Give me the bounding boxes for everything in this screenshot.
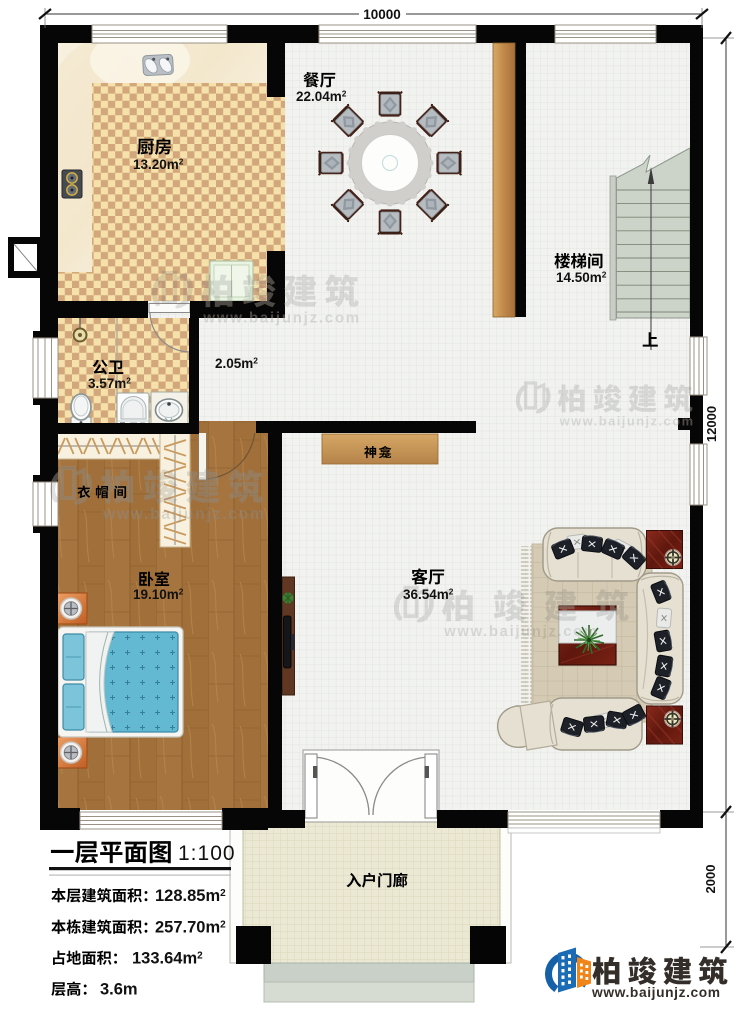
svg-text:1:100: 1:100 <box>178 842 236 865</box>
svg-text:3.57m2: 3.57m2 <box>88 376 131 391</box>
svg-text:www.baijunjz.com: www.baijunjz.com <box>591 985 721 1000</box>
svg-text:14.50m2: 14.50m2 <box>556 270 607 285</box>
svg-text:www.baijunjz.com: www.baijunjz.com <box>102 506 266 523</box>
svg-text:13.20m2: 13.20m2 <box>133 157 184 172</box>
svg-text:10000: 10000 <box>363 7 401 22</box>
svg-text:12000: 12000 <box>704 406 719 442</box>
svg-text:www.baijunjz.com: www.baijunjz.com <box>443 624 598 640</box>
svg-text:19.10m2: 19.10m2 <box>133 587 184 602</box>
svg-text:www.baijunjz.com: www.baijunjz.com <box>202 309 361 326</box>
svg-text:133.64m2: 133.64m2 <box>132 950 203 968</box>
svg-text:2000: 2000 <box>703 865 718 894</box>
svg-text:www.baijunjz.com: www.baijunjz.com <box>559 413 695 428</box>
svg-text:2.05m2: 2.05m2 <box>215 356 258 371</box>
svg-text:128.85m2: 128.85m2 <box>155 887 226 905</box>
svg-text:22.04m2: 22.04m2 <box>296 89 347 104</box>
svg-text:257.70m2: 257.70m2 <box>155 919 226 937</box>
svg-text:36.54m2: 36.54m2 <box>403 587 454 602</box>
svg-text:3.6m: 3.6m <box>100 981 138 999</box>
